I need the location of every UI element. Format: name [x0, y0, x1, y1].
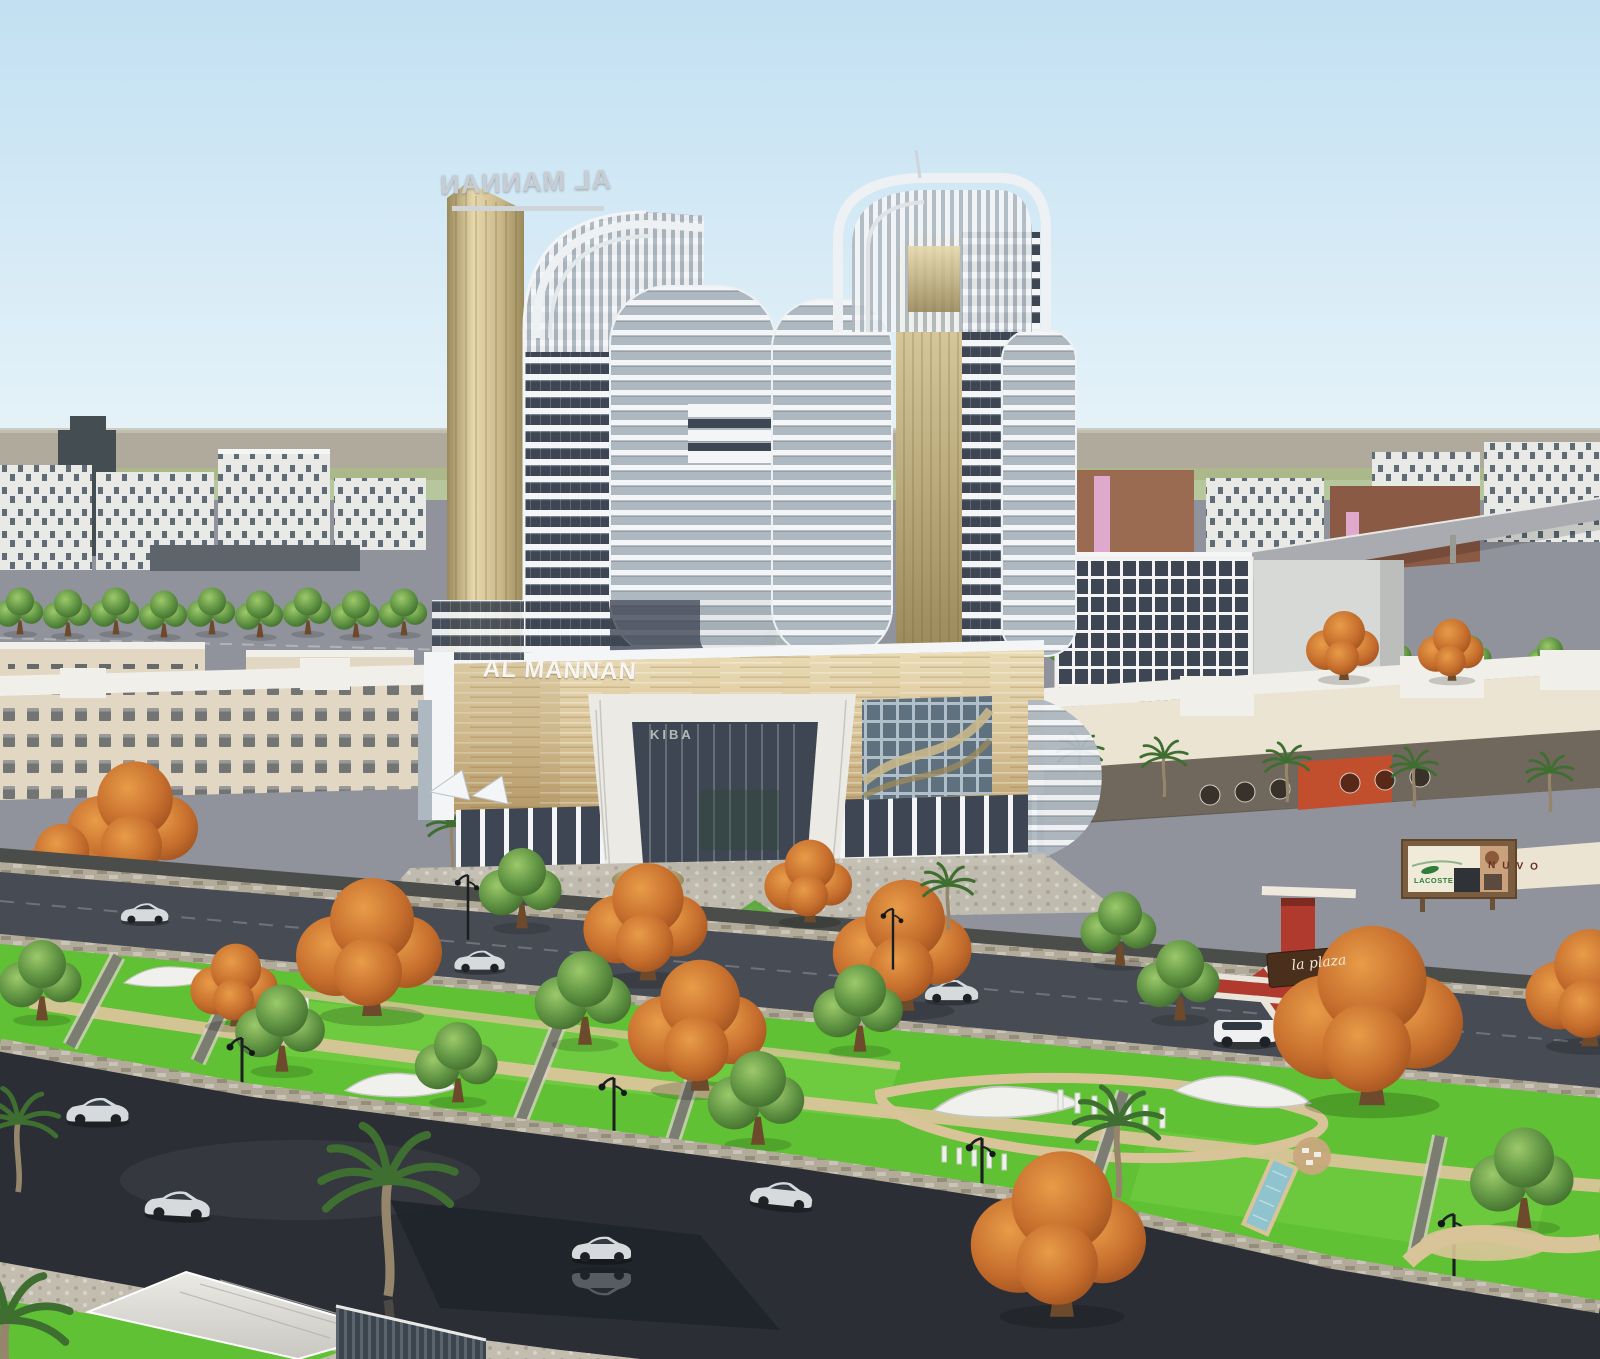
render-scene: AL MANNAN AL MANNAN KIBA LACOSTE NUVO la…: [0, 0, 1600, 1359]
pink-banner-tower: [1094, 476, 1110, 558]
glass-curtain-wing: [862, 696, 992, 800]
suv: [1213, 1020, 1279, 1050]
seating-deck: [1293, 1137, 1331, 1175]
scene-canvas: [0, 0, 1600, 1359]
rooftop-sign-support: [452, 206, 604, 211]
balcony-stack-right: [772, 300, 892, 656]
